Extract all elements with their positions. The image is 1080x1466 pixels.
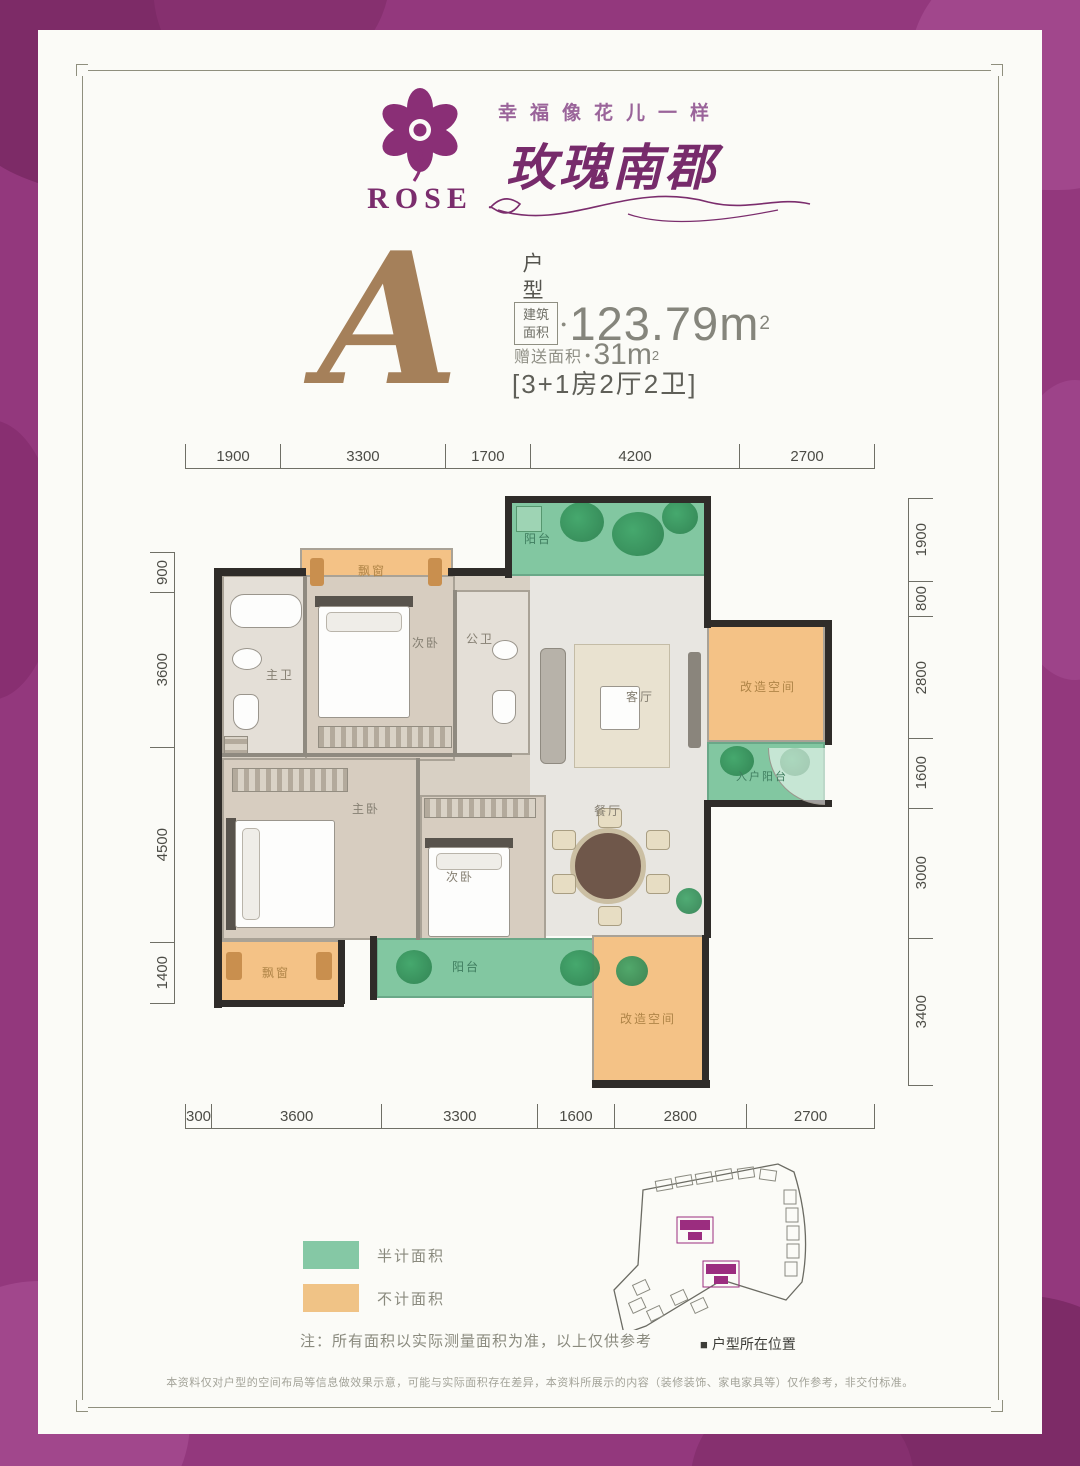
brand-name: 玫瑰南郡 [506,128,718,200]
dining-table [570,828,646,904]
poster-page: ROSE 幸福像花儿一样 玫瑰南郡 A 户型 建筑面积 ● 123.79m 2 … [0,0,1080,1466]
dimension-strip-left: 900 3600 4500 1400 [150,552,175,1004]
dim-segment: 3400 [909,938,933,1086]
disclaimer-text: 本资料仅对户型的空间布局等信息做效果示意，可能与实际面积存在差异，本资料所展示的… [120,1374,960,1390]
room-label: 飘窗 [262,964,290,981]
room-label: 改造空间 [620,1010,676,1027]
dim-label: 2800 [664,1108,697,1128]
wall-segment [704,496,711,628]
room-label: 改造空间 [740,678,796,695]
legend-note: 注：所有面积以实际测量面积为准，以上仅供参考 [300,1330,652,1351]
wardrobe [232,768,348,792]
plant [616,956,648,986]
dim-segment: 2800 [614,1104,747,1128]
wardrobe [424,798,536,818]
rose-logo-icon [368,84,472,184]
bay-window-seat [226,952,242,980]
dim-label: 2700 [790,448,823,468]
legend-label: 不计面积 [377,1288,445,1309]
dim-label: 3600 [280,1108,313,1128]
dim-segment: 2700 [739,444,875,468]
dining-chair [646,830,670,850]
dimension-strip-top: 1900 3300 1700 4200 2700 [185,444,875,469]
bathtub [230,594,302,628]
interior-wall [222,753,512,757]
room-label: 主卧 [352,800,380,817]
unit-layout: [3+1房2厅2卫] [512,364,697,401]
wall-segment [704,806,711,938]
tv-cabinet [688,652,701,748]
unit-letter: A [318,228,459,410]
wall-segment [370,936,377,1000]
dim-label: 3400 [913,995,930,1028]
dim-segment: 3300 [381,1104,537,1128]
wall-segment [702,935,709,1087]
frame-corner [76,64,88,76]
room-label: 入户阳台 [736,768,788,784]
dim-label: 1600 [913,756,930,789]
frame-corner [76,1400,88,1412]
legend-swatch-orange [303,1284,359,1312]
dim-label: 800 [913,586,930,611]
dim-label: 2700 [794,1108,827,1128]
dim-segment: 2800 [909,616,933,738]
dim-segment: 900 [150,552,174,592]
wall-segment [592,1080,710,1088]
room-reno-space-bottom [592,935,708,1083]
dim-segment: 1900 [185,444,280,468]
pillow [242,828,260,920]
rose-logo-text: ROSE [352,182,488,216]
plant [560,502,604,542]
dim-segment: 1900 [909,498,933,581]
toilet [492,690,516,724]
sofa [540,648,566,764]
legend-swatch-green [303,1241,359,1269]
interior-wall [453,590,457,755]
dim-label: 2800 [913,661,930,694]
plant [612,512,664,556]
site-location-map [588,1150,918,1330]
dim-label: 1900 [216,448,249,468]
room-label: 次卧 [446,868,474,885]
dim-segment: 3000 [909,808,933,938]
dim-label: 300 [186,1108,211,1128]
legend-half-area: 半计面积 [303,1241,445,1269]
dim-label: 1400 [154,956,171,989]
interior-wall [303,575,307,757]
dim-segment: 300 [185,1104,211,1128]
room-label: 阳台 [452,958,480,975]
interior-wall [416,758,420,940]
dim-segment: 1400 [150,942,174,1004]
sitemap-caption: ■ 户型所在位置 [700,1334,796,1354]
wall-segment [214,568,306,576]
plant [560,950,600,986]
room-guest-bath [455,590,530,755]
dim-segment: 4200 [530,444,739,468]
dim-label: 4200 [618,448,651,468]
dim-label: 3300 [443,1108,476,1128]
dresser [318,726,452,748]
wall-segment [505,496,711,503]
dim-segment: 3600 [150,592,174,748]
dim-label: 900 [154,560,171,585]
sink [492,640,518,660]
wall-segment [825,620,832,745]
planter-box [516,506,542,532]
dining-chair [552,830,576,850]
dim-label: 4500 [154,828,171,861]
dim-label: 3600 [154,653,171,686]
wall-segment [448,568,512,576]
dot-separator: ● [585,350,590,360]
dim-segment: 3600 [211,1104,381,1128]
dim-label: 3300 [346,448,379,468]
room-label: 次卧 [412,634,440,651]
dim-segment: 2700 [746,1104,875,1128]
dimension-strip-right: 1900 800 2800 1600 3000 3400 [908,498,933,1086]
built-area-sup: 2 [759,314,770,333]
dim-segment: 800 [909,581,933,616]
dot-separator: ● [561,319,566,329]
sitemap-caption-text: 户型所在位置 [712,1334,796,1354]
room-label: 餐厅 [594,802,622,819]
frame-corner [991,64,1003,76]
dining-chair [646,874,670,894]
sink [232,648,262,670]
dim-segment: 3300 [280,444,445,468]
room-label: 客厅 [626,688,654,705]
legend-excluded-area: 不计面积 [303,1284,445,1312]
plant [396,950,432,984]
bay-window-seat [316,952,332,980]
plant [676,888,702,914]
dimension-strip-bottom: 300 3600 3300 1600 2800 2700 [185,1104,875,1129]
room-label: 阳台 [524,530,552,547]
legend-label: 半计面积 [377,1245,445,1266]
dim-label: 1600 [559,1108,592,1128]
frame-corner [991,1400,1003,1412]
wall-segment [704,620,832,627]
dim-label: 1700 [471,448,504,468]
bonus-area-sup: 2 [652,348,659,363]
plant [662,500,698,534]
room-label: 主卫 [266,666,294,683]
room-label: 公卫 [466,630,494,647]
room-label: 飘窗 [358,562,386,579]
wall-segment [214,568,222,1008]
bay-window-seat [310,558,324,586]
bay-window-seat [428,558,442,586]
dim-segment: 4500 [150,747,174,941]
pillow [326,612,402,632]
dim-label: 1900 [913,523,930,556]
brand-tagline: 幸福像花儿一样 [498,98,722,125]
wall-segment [505,496,512,578]
dim-segment: 1600 [537,1104,613,1128]
sitemap-marker-icon: ■ [700,1337,708,1352]
toilet [233,694,259,730]
dim-segment: 1600 [909,738,933,808]
wall-segment [214,1000,344,1007]
dining-chair [552,874,576,894]
dining-chair [598,906,622,926]
wall-segment [338,940,345,1004]
dim-label: 3000 [913,856,930,889]
dim-segment: 1700 [445,444,530,468]
